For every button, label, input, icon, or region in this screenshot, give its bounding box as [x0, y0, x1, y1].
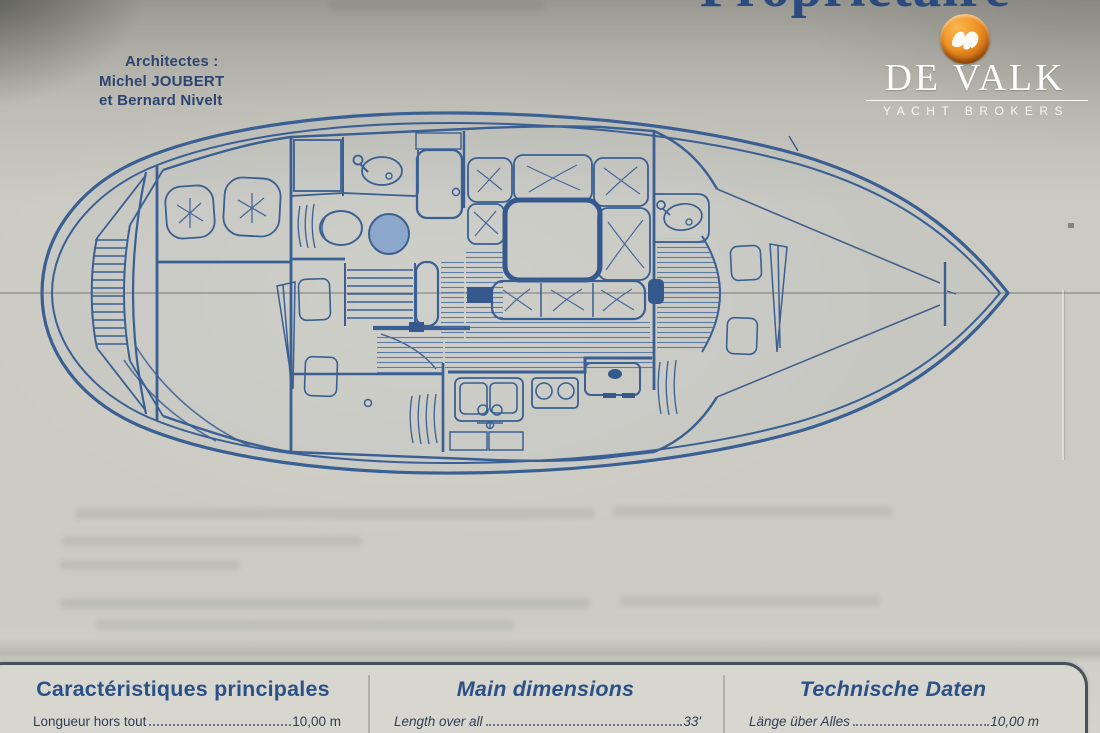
spec-value: 10,00 m	[990, 714, 1039, 729]
spec-label: Length over all	[394, 714, 483, 729]
brochure-page: Propriétaire Architectes : Michel JOUBER…	[0, 0, 1100, 733]
spec-header-french: Caractéristiques principales	[3, 677, 363, 702]
dotted-leader	[486, 724, 683, 726]
door-post	[648, 279, 664, 304]
spec-row: Länge über Alles 10,00 m	[749, 714, 1039, 729]
spec-label: Länge über Alles	[749, 714, 850, 729]
spec-row: Longueur hors tout 10,00 m	[33, 714, 341, 729]
spec-value: 33'	[683, 714, 701, 729]
spec-row: Length over all 33'	[394, 714, 701, 729]
mast-post	[467, 287, 493, 303]
spec-column-german: Technische Daten Länge über Alles 10,00 …	[723, 665, 1063, 733]
dotted-leader	[149, 724, 291, 726]
floorplan-drawing	[0, 0, 1100, 733]
spec-label: Longueur hors tout	[33, 714, 146, 729]
spec-column-french: Caractéristiques principales Longueur ho…	[3, 665, 363, 733]
spec-header-english: Main dimensions	[368, 677, 723, 702]
spec-column-english: Main dimensions Length over all 33'	[368, 665, 723, 733]
spec-header-german: Technische Daten	[723, 677, 1063, 702]
shower-basin	[369, 214, 409, 254]
dotted-leader	[853, 724, 989, 726]
spec-table: Caractéristiques principales Longueur ho…	[0, 662, 1088, 733]
spec-value: 10,00 m	[292, 714, 341, 729]
